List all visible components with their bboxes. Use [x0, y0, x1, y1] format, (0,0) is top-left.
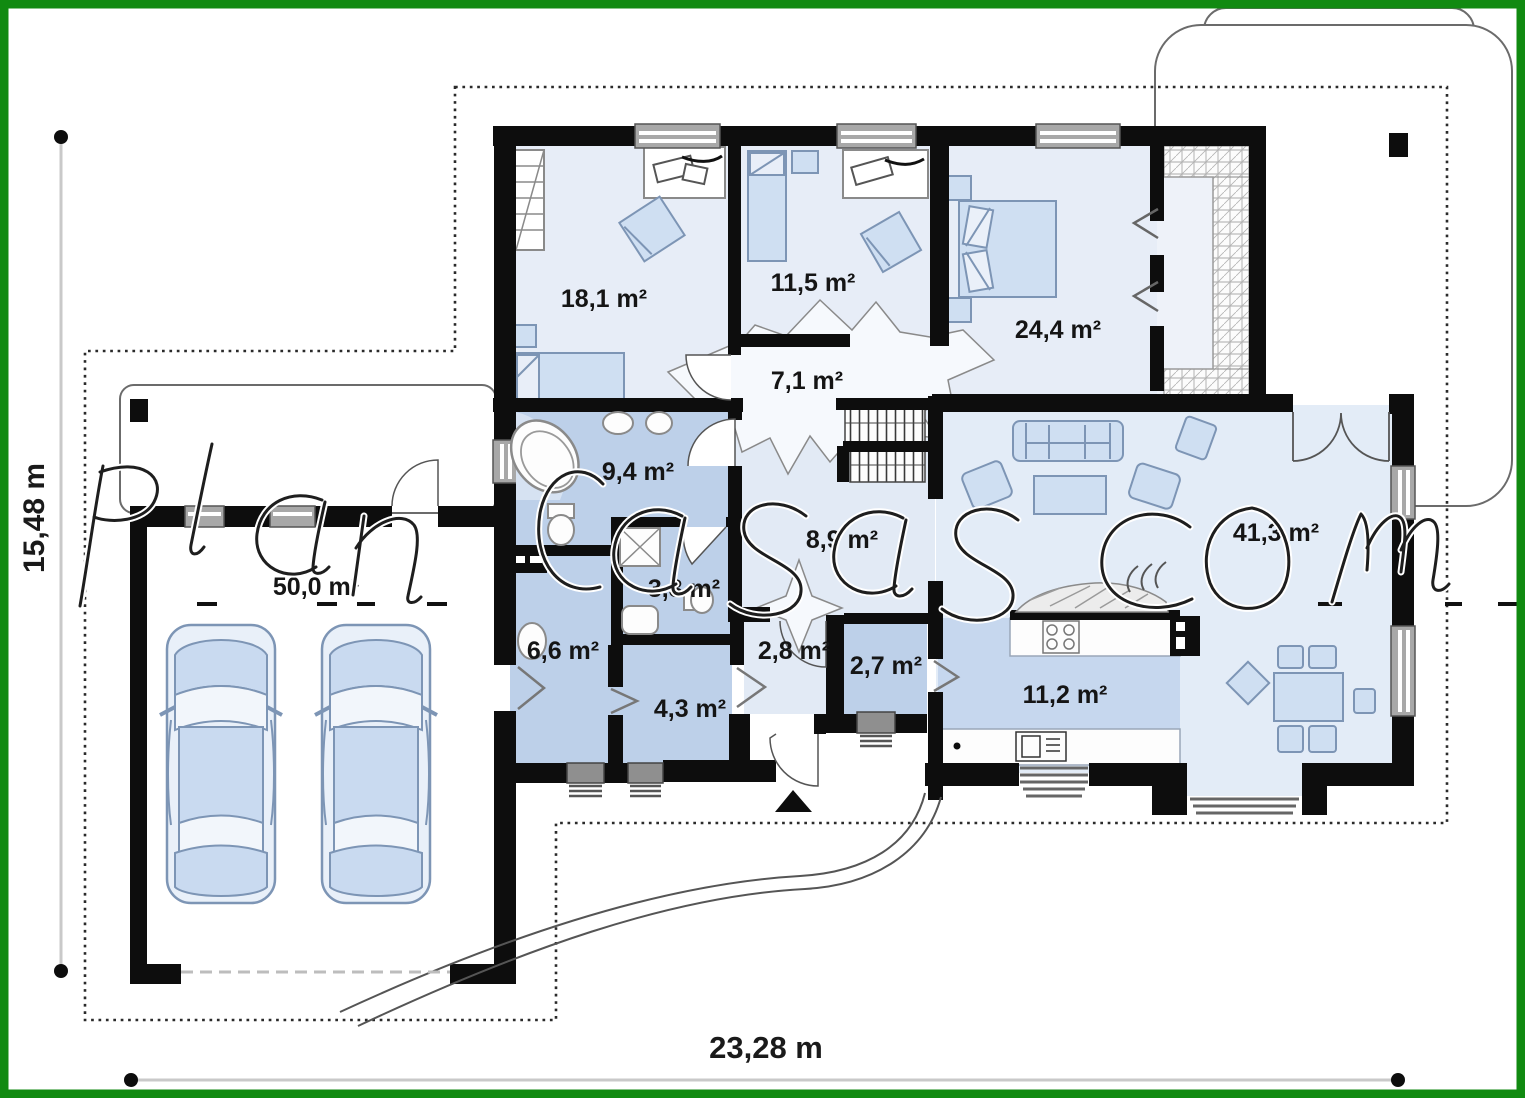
- svg-text:23,28 m: 23,28 m: [709, 1030, 823, 1065]
- svg-text:15,48 m: 15,48 m: [18, 463, 51, 573]
- svg-text:2,8 m²: 2,8 m²: [758, 637, 830, 665]
- svg-text:18,1 m²: 18,1 m²: [561, 285, 647, 313]
- svg-text:9,4 m²: 9,4 m²: [602, 458, 674, 486]
- svg-text:11,2 m²: 11,2 m²: [1023, 681, 1108, 709]
- svg-text:4,3 m²: 4,3 m²: [654, 695, 726, 723]
- svg-text:6,6 m²: 6,6 m²: [527, 637, 599, 665]
- svg-text:50,0 m²: 50,0 m²: [273, 573, 359, 601]
- svg-text:11,5 m²: 11,5 m²: [771, 269, 856, 297]
- svg-text:24,4 m²: 24,4 m²: [1015, 316, 1101, 344]
- svg-text:2,7 m²: 2,7 m²: [850, 652, 922, 680]
- svg-text:7,1 m²: 7,1 m²: [771, 367, 843, 395]
